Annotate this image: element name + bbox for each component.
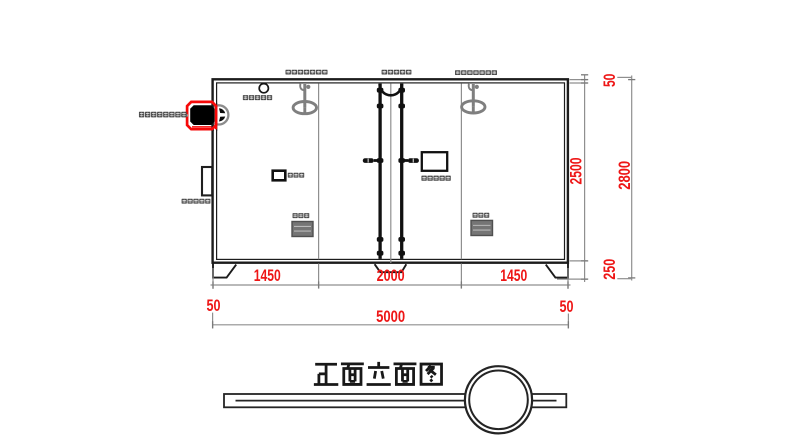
svg-text:1450: 1450 — [254, 266, 281, 285]
svg-text:50: 50 — [560, 297, 574, 316]
svg-text:2800: 2800 — [615, 161, 634, 190]
svg-text:50: 50 — [207, 296, 221, 315]
svg-text:1450: 1450 — [500, 266, 527, 285]
svg-text:2500: 2500 — [566, 158, 585, 185]
svg-text:50: 50 — [600, 74, 619, 88]
svg-text:2000: 2000 — [377, 266, 405, 285]
svg-text:5000: 5000 — [376, 307, 405, 326]
svg-text:250: 250 — [600, 259, 619, 280]
